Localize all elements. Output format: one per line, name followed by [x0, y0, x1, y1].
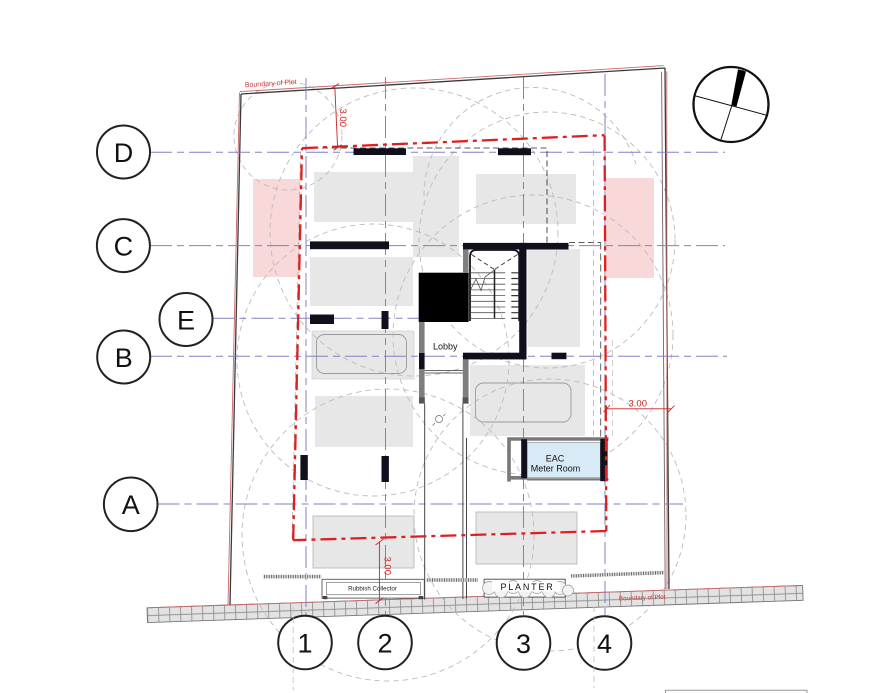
svg-text:4: 4 [597, 629, 612, 659]
svg-text:Rubbish Collector: Rubbish Collector [348, 586, 397, 593]
svg-text:Lobby: Lobby [433, 342, 458, 352]
svg-text:3.00: 3.00 [381, 557, 392, 576]
svg-text:Meter Room: Meter Room [531, 464, 581, 474]
svg-text:PLANTER: PLANTER [500, 582, 554, 592]
svg-text:B: B [115, 343, 133, 373]
svg-text:E: E [177, 305, 195, 335]
svg-text:D: D [114, 138, 134, 168]
svg-text:1: 1 [297, 628, 312, 658]
svg-text:A: A [122, 490, 140, 520]
svg-text:2: 2 [377, 628, 392, 658]
svg-text:C: C [114, 232, 134, 262]
svg-text:3.00: 3.00 [337, 109, 348, 128]
svg-text:3: 3 [516, 629, 531, 659]
svg-text:3.00: 3.00 [629, 399, 648, 410]
svg-text:EAC: EAC [546, 453, 565, 463]
